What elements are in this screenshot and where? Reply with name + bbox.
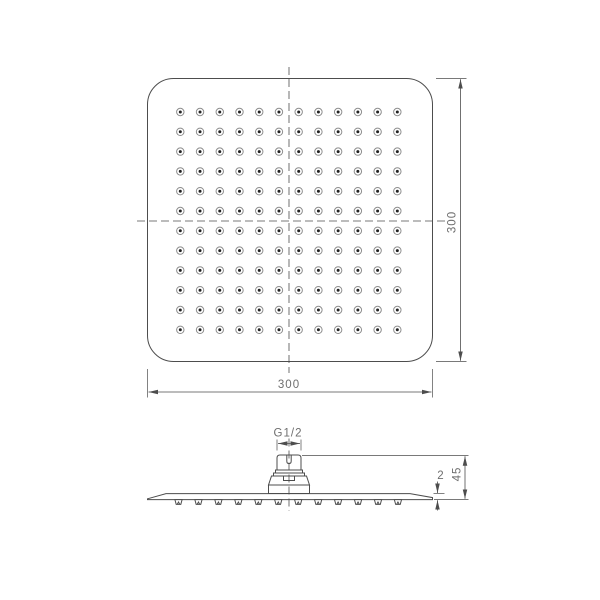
nozzle-center <box>258 269 261 272</box>
nozzle-center <box>199 170 202 173</box>
nozzle-center <box>258 150 261 153</box>
nozzle-center <box>317 249 320 252</box>
nozzle-center <box>179 229 182 232</box>
nozzle-center <box>376 170 379 173</box>
nozzle-center <box>356 190 359 193</box>
nozzle-center <box>218 170 221 173</box>
nozzle-center <box>297 210 300 213</box>
nozzle-center <box>337 190 340 193</box>
nozzle-center <box>297 150 300 153</box>
shower-head-technical-drawing: 300 300 <box>0 0 600 600</box>
nozzle-center <box>199 190 202 193</box>
nozzle-center <box>238 170 241 173</box>
nozzle-center <box>337 130 340 133</box>
nozzle-center <box>376 309 379 312</box>
nozzle-center <box>356 309 359 312</box>
nozzle-center <box>337 289 340 292</box>
nozzle-center <box>356 289 359 292</box>
nozzle-center <box>317 111 320 114</box>
shower-head-outline <box>148 79 433 362</box>
nozzle-center <box>258 130 261 133</box>
nozzle-center <box>238 289 241 292</box>
nozzle-center <box>277 190 280 193</box>
nozzle-center <box>238 328 241 331</box>
nozzle-center <box>199 249 202 252</box>
width-dimension-label: 300 <box>278 379 300 391</box>
nozzle-center <box>356 150 359 153</box>
nozzle-center <box>258 170 261 173</box>
nozzle-center <box>396 269 399 272</box>
nozzle-center <box>396 328 399 331</box>
nozzle-center <box>376 150 379 153</box>
nozzle-center <box>317 210 320 213</box>
nozzle-center <box>317 170 320 173</box>
nozzle-center <box>356 269 359 272</box>
nozzle-center <box>258 210 261 213</box>
nozzle-center <box>297 229 300 232</box>
nozzle-center <box>277 309 280 312</box>
nozzle-center <box>199 269 202 272</box>
thread-label: G1/2 <box>274 428 303 440</box>
nozzle-center <box>258 328 261 331</box>
nozzle-center <box>258 309 261 312</box>
top-view: 300 300 <box>137 67 467 398</box>
nozzle-center <box>337 309 340 312</box>
nozzle-center <box>238 229 241 232</box>
nozzle-center <box>179 309 182 312</box>
nozzle-center <box>238 190 241 193</box>
nozzle-center <box>376 289 379 292</box>
nozzle-center <box>297 249 300 252</box>
nozzle-center <box>317 150 320 153</box>
nozzle-center <box>297 309 300 312</box>
nozzle-center <box>218 210 221 213</box>
side-nozzle-teeth <box>175 500 402 505</box>
nozzle-center <box>277 249 280 252</box>
nozzle-center <box>218 111 221 114</box>
side-view: G1/2 45 2 <box>148 428 469 512</box>
nozzle-center <box>218 309 221 312</box>
nozzle-center <box>199 210 202 213</box>
nozzle-center <box>376 111 379 114</box>
nozzle-center <box>317 190 320 193</box>
nozzle-center <box>179 111 182 114</box>
nozzle-center <box>218 249 221 252</box>
nozzle-center <box>179 249 182 252</box>
nozzle-center <box>218 130 221 133</box>
nozzle-center <box>317 289 320 292</box>
nozzle-center <box>277 269 280 272</box>
nozzle-center <box>396 249 399 252</box>
height-dimension-label: 300 <box>447 211 459 233</box>
nozzle-center <box>356 130 359 133</box>
nozzle-center <box>277 150 280 153</box>
nozzle-center <box>238 249 241 252</box>
nozzle-center <box>337 328 340 331</box>
nozzle-center <box>199 289 202 292</box>
nozzle-center <box>297 170 300 173</box>
nozzle-center <box>376 210 379 213</box>
nozzle-center <box>297 111 300 114</box>
nozzle-center <box>376 130 379 133</box>
nozzle-center <box>179 190 182 193</box>
nozzle-center <box>238 150 241 153</box>
nozzle-center <box>258 249 261 252</box>
nozzle-center <box>356 210 359 213</box>
nozzle-center <box>179 170 182 173</box>
nozzle-center <box>396 150 399 153</box>
nozzle-center <box>199 309 202 312</box>
nozzle-center <box>218 150 221 153</box>
nozzle-center <box>258 111 261 114</box>
nozzle-center <box>277 289 280 292</box>
nozzle-center <box>376 229 379 232</box>
nozzle-center <box>356 229 359 232</box>
nozzle-center <box>337 229 340 232</box>
nozzle-center <box>337 170 340 173</box>
nozzle-center <box>297 328 300 331</box>
nozzle-center <box>396 190 399 193</box>
nozzle-center <box>218 190 221 193</box>
nozzle-center <box>297 130 300 133</box>
nozzle-center <box>199 130 202 133</box>
nozzle-center <box>179 130 182 133</box>
nozzle-center <box>277 328 280 331</box>
nozzle-center <box>218 289 221 292</box>
nozzle-center <box>297 289 300 292</box>
nozzle-center <box>277 229 280 232</box>
nozzle-center <box>356 328 359 331</box>
nozzle-center <box>376 269 379 272</box>
nozzle-center <box>199 229 202 232</box>
nozzle-center <box>317 130 320 133</box>
nozzle-center <box>396 210 399 213</box>
nozzle-center <box>218 328 221 331</box>
nozzle-center <box>238 111 241 114</box>
nozzle-center <box>218 269 221 272</box>
nozzle-center <box>356 249 359 252</box>
nozzle-center <box>396 130 399 133</box>
nozzle-center <box>356 111 359 114</box>
technical-drawing-canvas: 300 300 <box>0 0 600 600</box>
nozzle-center <box>337 210 340 213</box>
nozzle-center <box>277 130 280 133</box>
nozzle-center <box>337 269 340 272</box>
nozzle-center <box>317 229 320 232</box>
nozzle-center <box>238 210 241 213</box>
nozzle-center <box>356 170 359 173</box>
nozzle-center <box>396 309 399 312</box>
nozzle-center <box>297 190 300 193</box>
nozzle-center <box>179 269 182 272</box>
plate-profile <box>148 494 433 500</box>
nozzle-center <box>376 190 379 193</box>
nozzle-center <box>258 190 261 193</box>
nozzle-center <box>258 289 261 292</box>
nozzle-center <box>317 269 320 272</box>
side-height-label: 45 <box>452 467 464 482</box>
nozzle-center <box>317 309 320 312</box>
nozzle-center <box>277 210 280 213</box>
nozzle-center <box>179 210 182 213</box>
nozzle-center <box>277 170 280 173</box>
nozzle-center <box>238 269 241 272</box>
nozzle-center <box>396 111 399 114</box>
nozzle-center <box>337 150 340 153</box>
nozzle-center <box>396 170 399 173</box>
nozzle-center <box>396 289 399 292</box>
nozzle-center <box>297 269 300 272</box>
nozzle-center <box>396 229 399 232</box>
nozzle-center <box>199 328 202 331</box>
nozzle-center <box>337 111 340 114</box>
nozzle-center <box>376 249 379 252</box>
nozzle-center <box>218 229 221 232</box>
nozzle-center <box>317 328 320 331</box>
nozzle-center <box>258 229 261 232</box>
nozzle-center <box>277 111 280 114</box>
nozzle-center <box>199 111 202 114</box>
nozzle-center <box>238 130 241 133</box>
nozzle-center <box>179 328 182 331</box>
thickness-label: 2 <box>437 470 444 482</box>
nozzle-center <box>179 150 182 153</box>
nozzle-center <box>337 249 340 252</box>
nozzle-center <box>179 289 182 292</box>
nozzle-center <box>238 309 241 312</box>
nozzle-center <box>376 328 379 331</box>
nozzle-center <box>199 150 202 153</box>
